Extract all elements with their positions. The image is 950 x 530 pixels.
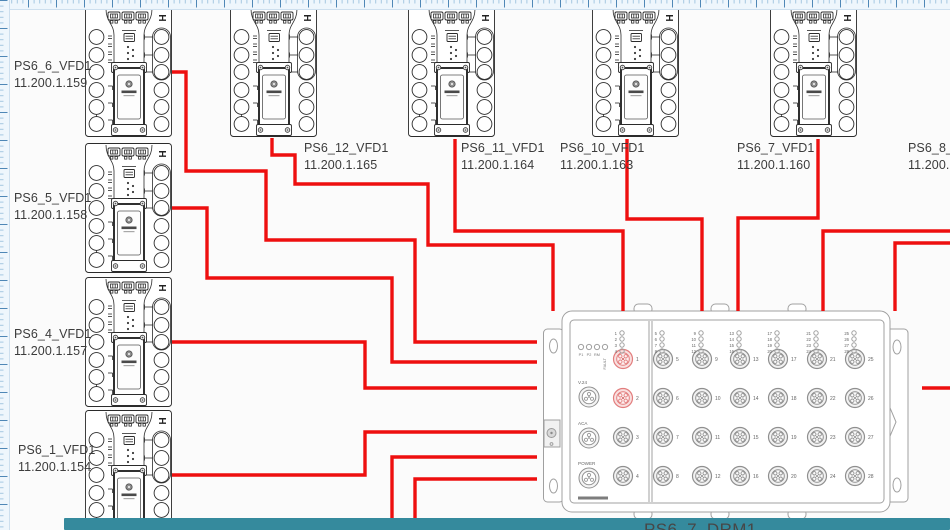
m12-port-18 <box>769 389 788 408</box>
svg-text:9: 9 <box>715 357 718 363</box>
ruler-horizontal <box>0 0 950 10</box>
svg-text:RM: RM <box>594 353 600 357</box>
vfd-device-ps6_10[interactable]: H <box>593 8 679 137</box>
svg-text:12: 12 <box>691 349 696 354</box>
svg-text:26: 26 <box>868 396 874 402</box>
device-ip: 11.200.1.158 <box>14 207 91 224</box>
svg-text:17: 17 <box>767 331 772 336</box>
svg-text:V.24: V.24 <box>578 380 587 385</box>
device-name: PS6_12_VFD1 <box>304 140 389 157</box>
m12-port-12 <box>693 467 712 486</box>
svg-text:H: H <box>479 14 490 21</box>
device-ip: 11.200.1.164 <box>461 157 545 174</box>
svg-text:28: 28 <box>844 349 849 354</box>
svg-text:27: 27 <box>844 343 849 348</box>
svg-text:H: H <box>156 150 167 157</box>
svg-text:H: H <box>156 14 167 21</box>
svg-text:ACA: ACA <box>578 421 588 426</box>
svg-text:25: 25 <box>844 331 849 336</box>
svg-text:16: 16 <box>753 474 759 480</box>
svg-text:4: 4 <box>636 474 639 480</box>
svg-text:20: 20 <box>791 474 797 480</box>
svg-text:P1: P1 <box>579 353 584 357</box>
device-label-ps6_10: PS6_10_VFD111.200.1.163 <box>560 140 645 174</box>
svg-text:15: 15 <box>729 343 734 348</box>
svg-text:19: 19 <box>767 343 772 348</box>
device-name: PS6_11_VFD1 <box>461 140 545 157</box>
svg-text:H: H <box>663 14 674 21</box>
svg-text:28: 28 <box>868 474 874 480</box>
svg-text:POWER: POWER <box>578 461 596 466</box>
m12-port-23 <box>808 428 827 447</box>
svg-text:7: 7 <box>676 435 679 441</box>
svg-text:20: 20 <box>767 349 772 354</box>
svg-text:24: 24 <box>806 349 811 354</box>
device-name: PS6_7_VFD1 <box>737 140 814 157</box>
device-ip: 11.200.1.154 <box>18 459 95 476</box>
svg-text:FAULT: FAULT <box>603 357 607 369</box>
vfd-device-ps6_4[interactable]: H <box>86 278 172 407</box>
svg-text:13: 13 <box>729 331 734 336</box>
horizontal-scrollbar-thumb[interactable] <box>64 518 950 530</box>
device-ip: 11.200.1.163 <box>560 157 645 174</box>
svg-text:H: H <box>841 14 852 21</box>
device-ip: 11.200.1.159 <box>14 75 91 92</box>
svg-text:25: 25 <box>868 357 874 363</box>
m12-port-24 <box>808 467 827 486</box>
svg-text:P2: P2 <box>587 353 592 357</box>
device-name: PS6_1_VFD1 <box>18 442 95 459</box>
svg-text:10: 10 <box>715 396 721 402</box>
vfd-device-ps6_11[interactable]: H <box>409 8 495 137</box>
vfd-device-ps6_6[interactable]: H <box>86 8 172 137</box>
svg-text:21: 21 <box>830 357 836 363</box>
svg-text:23: 23 <box>830 435 836 441</box>
wire-ps6_4-switch[interactable] <box>172 342 537 388</box>
svg-text:13: 13 <box>753 357 759 363</box>
vfd-device-ps6_12[interactable]: H <box>231 8 317 137</box>
device-label-ps6_6: PS6_6_VFD111.200.1.159 <box>14 58 91 92</box>
svg-text:19: 19 <box>791 435 797 441</box>
svg-text:1: 1 <box>636 357 639 363</box>
device-name: PS6_4_VFD1 <box>14 326 91 343</box>
m12-port-4 <box>614 467 633 486</box>
svg-text:11: 11 <box>692 343 697 348</box>
svg-text:17: 17 <box>791 357 797 363</box>
m12-port-3 <box>614 428 633 447</box>
m12-port-8 <box>654 467 673 486</box>
switch-device-ps6_7_drm1[interactable]: P1P2RMFAULTV.24ACAPOWER11223344556677889… <box>544 304 909 519</box>
vfd-device-ps6_1[interactable]: H <box>86 411 172 530</box>
device-ip: 11.200.1.160 <box>737 157 814 174</box>
diagram-scene: P1P2RMFAULTV.24ACAPOWER11223344556677889… <box>0 0 950 530</box>
wire-ps6_1-switch[interactable] <box>172 432 537 475</box>
device-name: PS6_6_VFD1 <box>14 58 91 75</box>
svg-text:22: 22 <box>806 337 811 342</box>
m12-port-22 <box>808 389 827 408</box>
m12-port-15 <box>731 428 750 447</box>
svg-text:21: 21 <box>806 331 811 336</box>
device-label-ps6_1: PS6_1_VFD111.200.1.154 <box>18 442 95 476</box>
svg-text:14: 14 <box>729 337 734 342</box>
svg-text:24: 24 <box>830 474 836 480</box>
device-ip: 11.200.1. <box>908 157 950 174</box>
m12-port-27 <box>846 428 865 447</box>
svg-text:5: 5 <box>676 357 679 363</box>
wire-right-2[interactable] <box>895 243 950 311</box>
m12-port-14 <box>731 389 750 408</box>
m12-port-20 <box>769 467 788 486</box>
svg-text:22: 22 <box>830 396 836 402</box>
device-ip: 11.200.1.157 <box>14 343 91 360</box>
m12-port-11 <box>693 428 712 447</box>
vfd-device-ps6_5[interactable]: H <box>86 144 172 273</box>
svg-text:14: 14 <box>753 396 759 402</box>
svg-text:10: 10 <box>691 337 696 342</box>
svg-text:H: H <box>156 284 167 291</box>
m12-port-26 <box>846 389 865 408</box>
svg-text:8: 8 <box>676 474 679 480</box>
svg-text:18: 18 <box>767 337 772 342</box>
m12-port-28 <box>846 467 865 486</box>
switch-label: PS6_7_DRM1 <box>644 520 757 530</box>
device-name: PS6_8_VF <box>908 140 950 157</box>
m12-port-6 <box>654 389 673 408</box>
m12-port-10 <box>693 389 712 408</box>
m12-port-2 <box>614 389 633 408</box>
svg-text:16: 16 <box>729 349 734 354</box>
svg-text:11: 11 <box>715 435 720 441</box>
m12-port-19 <box>769 428 788 447</box>
svg-text:H: H <box>301 14 312 21</box>
device-ip: 11.200.1.165 <box>304 157 389 174</box>
ruler-vertical <box>0 0 10 530</box>
device-label-ps6_12: PS6_12_VFD111.200.1.165 <box>304 140 389 174</box>
device-label-ps6_4: PS6_4_VFD111.200.1.157 <box>14 326 91 360</box>
svg-text:27: 27 <box>868 435 874 441</box>
svg-text:18: 18 <box>791 396 797 402</box>
device-label-ps6_5: PS6_5_VFD111.200.1.158 <box>14 190 91 224</box>
m12-port-16 <box>731 467 750 486</box>
device-label-ps6_7: PS6_7_VFD111.200.1.160 <box>737 140 814 174</box>
device-label-ps6_11: PS6_11_VFD111.200.1.164 <box>461 140 545 174</box>
svg-text:6: 6 <box>676 396 679 402</box>
device-name: PS6_10_VFD1 <box>560 140 645 157</box>
svg-text:H: H <box>156 417 167 424</box>
svg-text:2: 2 <box>636 396 639 402</box>
svg-text:26: 26 <box>844 337 849 342</box>
device-label-ps6_8: PS6_8_VF11.200.1. <box>908 140 950 174</box>
device-name: PS6_5_VFD1 <box>14 190 91 207</box>
vfd-device-ps6_7[interactable]: H <box>771 8 857 137</box>
svg-text:12: 12 <box>715 474 721 480</box>
m12-port-7 <box>654 428 673 447</box>
svg-text:3: 3 <box>636 435 639 441</box>
diagram-canvas[interactable]: P1P2RMFAULTV.24ACAPOWER11223344556677889… <box>0 0 950 530</box>
svg-text:23: 23 <box>806 343 811 348</box>
svg-text:15: 15 <box>753 435 759 441</box>
